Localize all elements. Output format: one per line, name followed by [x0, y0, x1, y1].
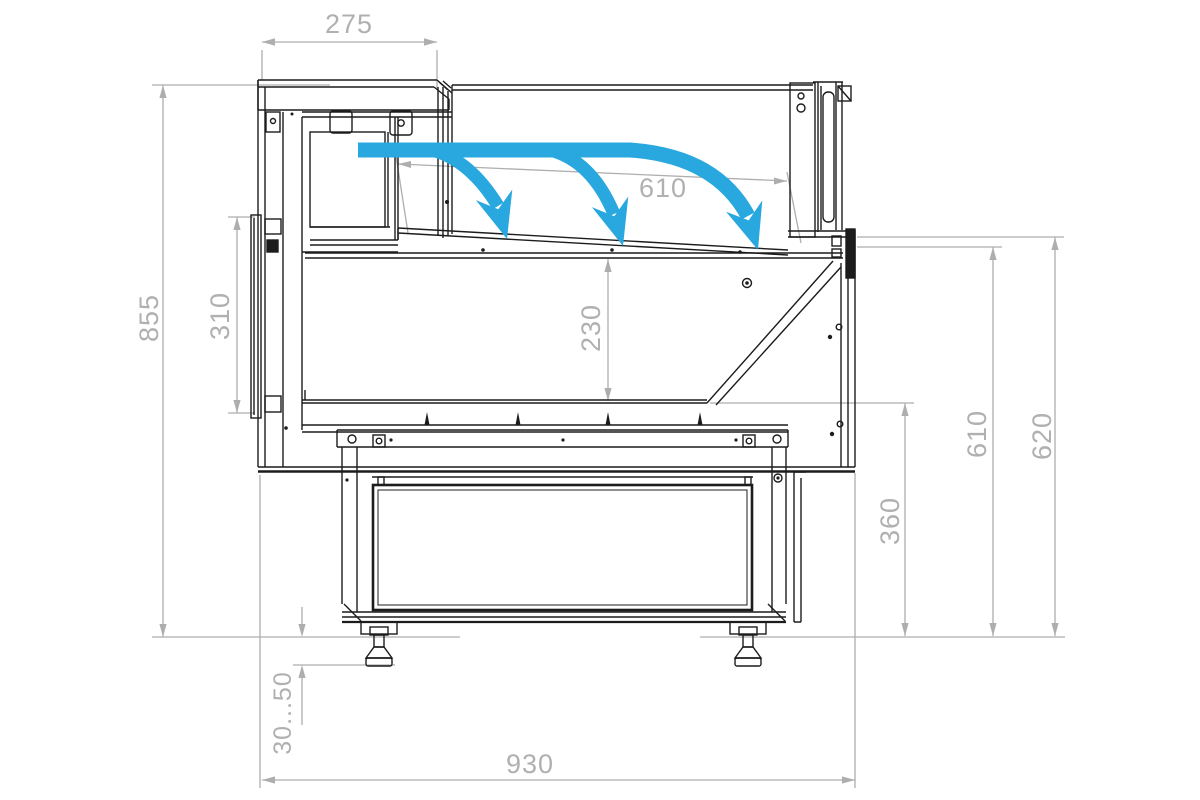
dimension-annotations: 275 610 855 310 230 610 620 360 30...50 … [134, 9, 1065, 788]
hole-icon [837, 421, 843, 427]
rack-pin [698, 412, 703, 425]
rack-pin [606, 412, 611, 425]
arrowhead [774, 178, 787, 185]
front-glass-lines [813, 82, 843, 232]
rivet-icon [345, 478, 348, 481]
adjustable-foot-left [361, 622, 397, 666]
front-glass-pane [823, 92, 834, 222]
dim-label-front-inner: 610 [962, 410, 992, 458]
foot-bracket [361, 622, 397, 634]
foot-pad [735, 658, 761, 666]
arrowhead [989, 247, 996, 260]
rail-fixing [373, 435, 385, 447]
back-panel-outline [251, 215, 261, 418]
rear-wall [258, 80, 305, 467]
arrowhead [989, 623, 996, 636]
wall-clip [267, 240, 278, 252]
extension-lines [262, 50, 437, 88]
rack-pin [425, 412, 430, 425]
dim-label-canopy-depth: 275 [325, 9, 373, 39]
rail-fixing [743, 435, 755, 447]
arrowhead [398, 161, 411, 168]
arrowhead [233, 400, 240, 413]
foot-cone [366, 647, 392, 658]
cabinet-structure [251, 80, 855, 666]
glass-corner-line [838, 86, 851, 101]
dim-label-base-height: 360 [875, 497, 905, 545]
foot-bracket [730, 622, 766, 634]
rivet-icon [284, 426, 288, 430]
airflow-branch-2 [550, 150, 614, 214]
rear-skin [794, 472, 806, 622]
mounting-plate [330, 111, 352, 133]
rivet-icon [830, 432, 834, 436]
column-hole [797, 104, 805, 112]
dim-label-foot-adjustment: 30...50 [269, 671, 297, 754]
rivet-icon [738, 250, 742, 254]
arrowhead [901, 403, 908, 416]
base-opening-inner [378, 490, 747, 605]
screw-icon [746, 438, 752, 444]
display-counter-section-drawing: 275 610 855 310 230 610 620 360 30...50 … [0, 0, 1200, 800]
dim-label-back-panel: 310 [205, 292, 235, 340]
dim-label-under-deck: 230 [576, 304, 606, 352]
base-bottom-band [342, 612, 786, 617]
dim-label-overall-height: 855 [134, 294, 164, 342]
compartment-top-band [302, 112, 452, 117]
technical-drawing-page: 275 610 855 310 230 610 620 360 30...50 … [0, 0, 1200, 800]
rail-hole [348, 435, 356, 443]
display-deck [305, 228, 846, 258]
wall-bracket [265, 219, 281, 234]
arrowhead [842, 776, 855, 783]
front-column [790, 83, 815, 237]
wall-bracket [265, 396, 281, 412]
rivet-icon [561, 438, 564, 441]
dim-label-display-opening: 610 [639, 173, 687, 203]
airflow-branch-1 [432, 150, 498, 206]
screw-icon [445, 200, 449, 204]
rivet-icon [481, 248, 485, 252]
adjustable-feet [361, 622, 766, 666]
inner-floor-lines [302, 400, 707, 403]
arrowhead [901, 623, 908, 636]
dim-label-overall-depth: 930 [506, 749, 554, 779]
arrowhead [604, 259, 611, 272]
arrowhead [298, 665, 305, 678]
rack-pin [516, 412, 521, 425]
rail-hole [773, 435, 781, 443]
base-opening [373, 485, 752, 610]
compartment-bottom-trays [302, 227, 398, 252]
deck-sloped-surface [398, 228, 788, 255]
screw-icon [398, 120, 404, 126]
rivet-icon [610, 248, 614, 252]
arrowhead [262, 776, 275, 783]
compartment-right-frame [395, 85, 452, 240]
arrowhead [233, 217, 240, 230]
rivet-icon [828, 335, 832, 339]
arrowhead [604, 388, 611, 401]
top-glass [452, 85, 813, 90]
arrowhead [424, 38, 437, 46]
rivet-icon [389, 438, 392, 441]
foot-cone [735, 647, 761, 658]
arrowhead [1051, 623, 1058, 636]
screw-icon [271, 119, 276, 124]
canopy-bevel-hatch [439, 81, 451, 90]
arrowhead [262, 38, 275, 46]
back-panel [251, 215, 261, 418]
column-hole [798, 93, 804, 99]
rivet-icon [734, 438, 737, 441]
arrowhead [159, 624, 166, 637]
wall-plate [266, 112, 280, 132]
base-frame [337, 430, 806, 622]
panel-screws [743, 279, 843, 437]
screw-icon [776, 476, 779, 479]
arrowhead [298, 624, 305, 637]
rivet-icon [291, 113, 294, 116]
front-diagonal [707, 261, 841, 405]
bumper-block [846, 229, 855, 278]
screw-icon [745, 281, 749, 285]
arrowhead [159, 85, 166, 98]
body-bottom-band [302, 425, 788, 432]
arrowhead [1051, 237, 1058, 250]
mounting-plate [390, 111, 412, 135]
dim-label-front-outer: 620 [1027, 412, 1057, 460]
airflow-main-duct [358, 150, 748, 216]
screw-icon [376, 438, 382, 444]
adjustable-foot-right [730, 622, 766, 666]
